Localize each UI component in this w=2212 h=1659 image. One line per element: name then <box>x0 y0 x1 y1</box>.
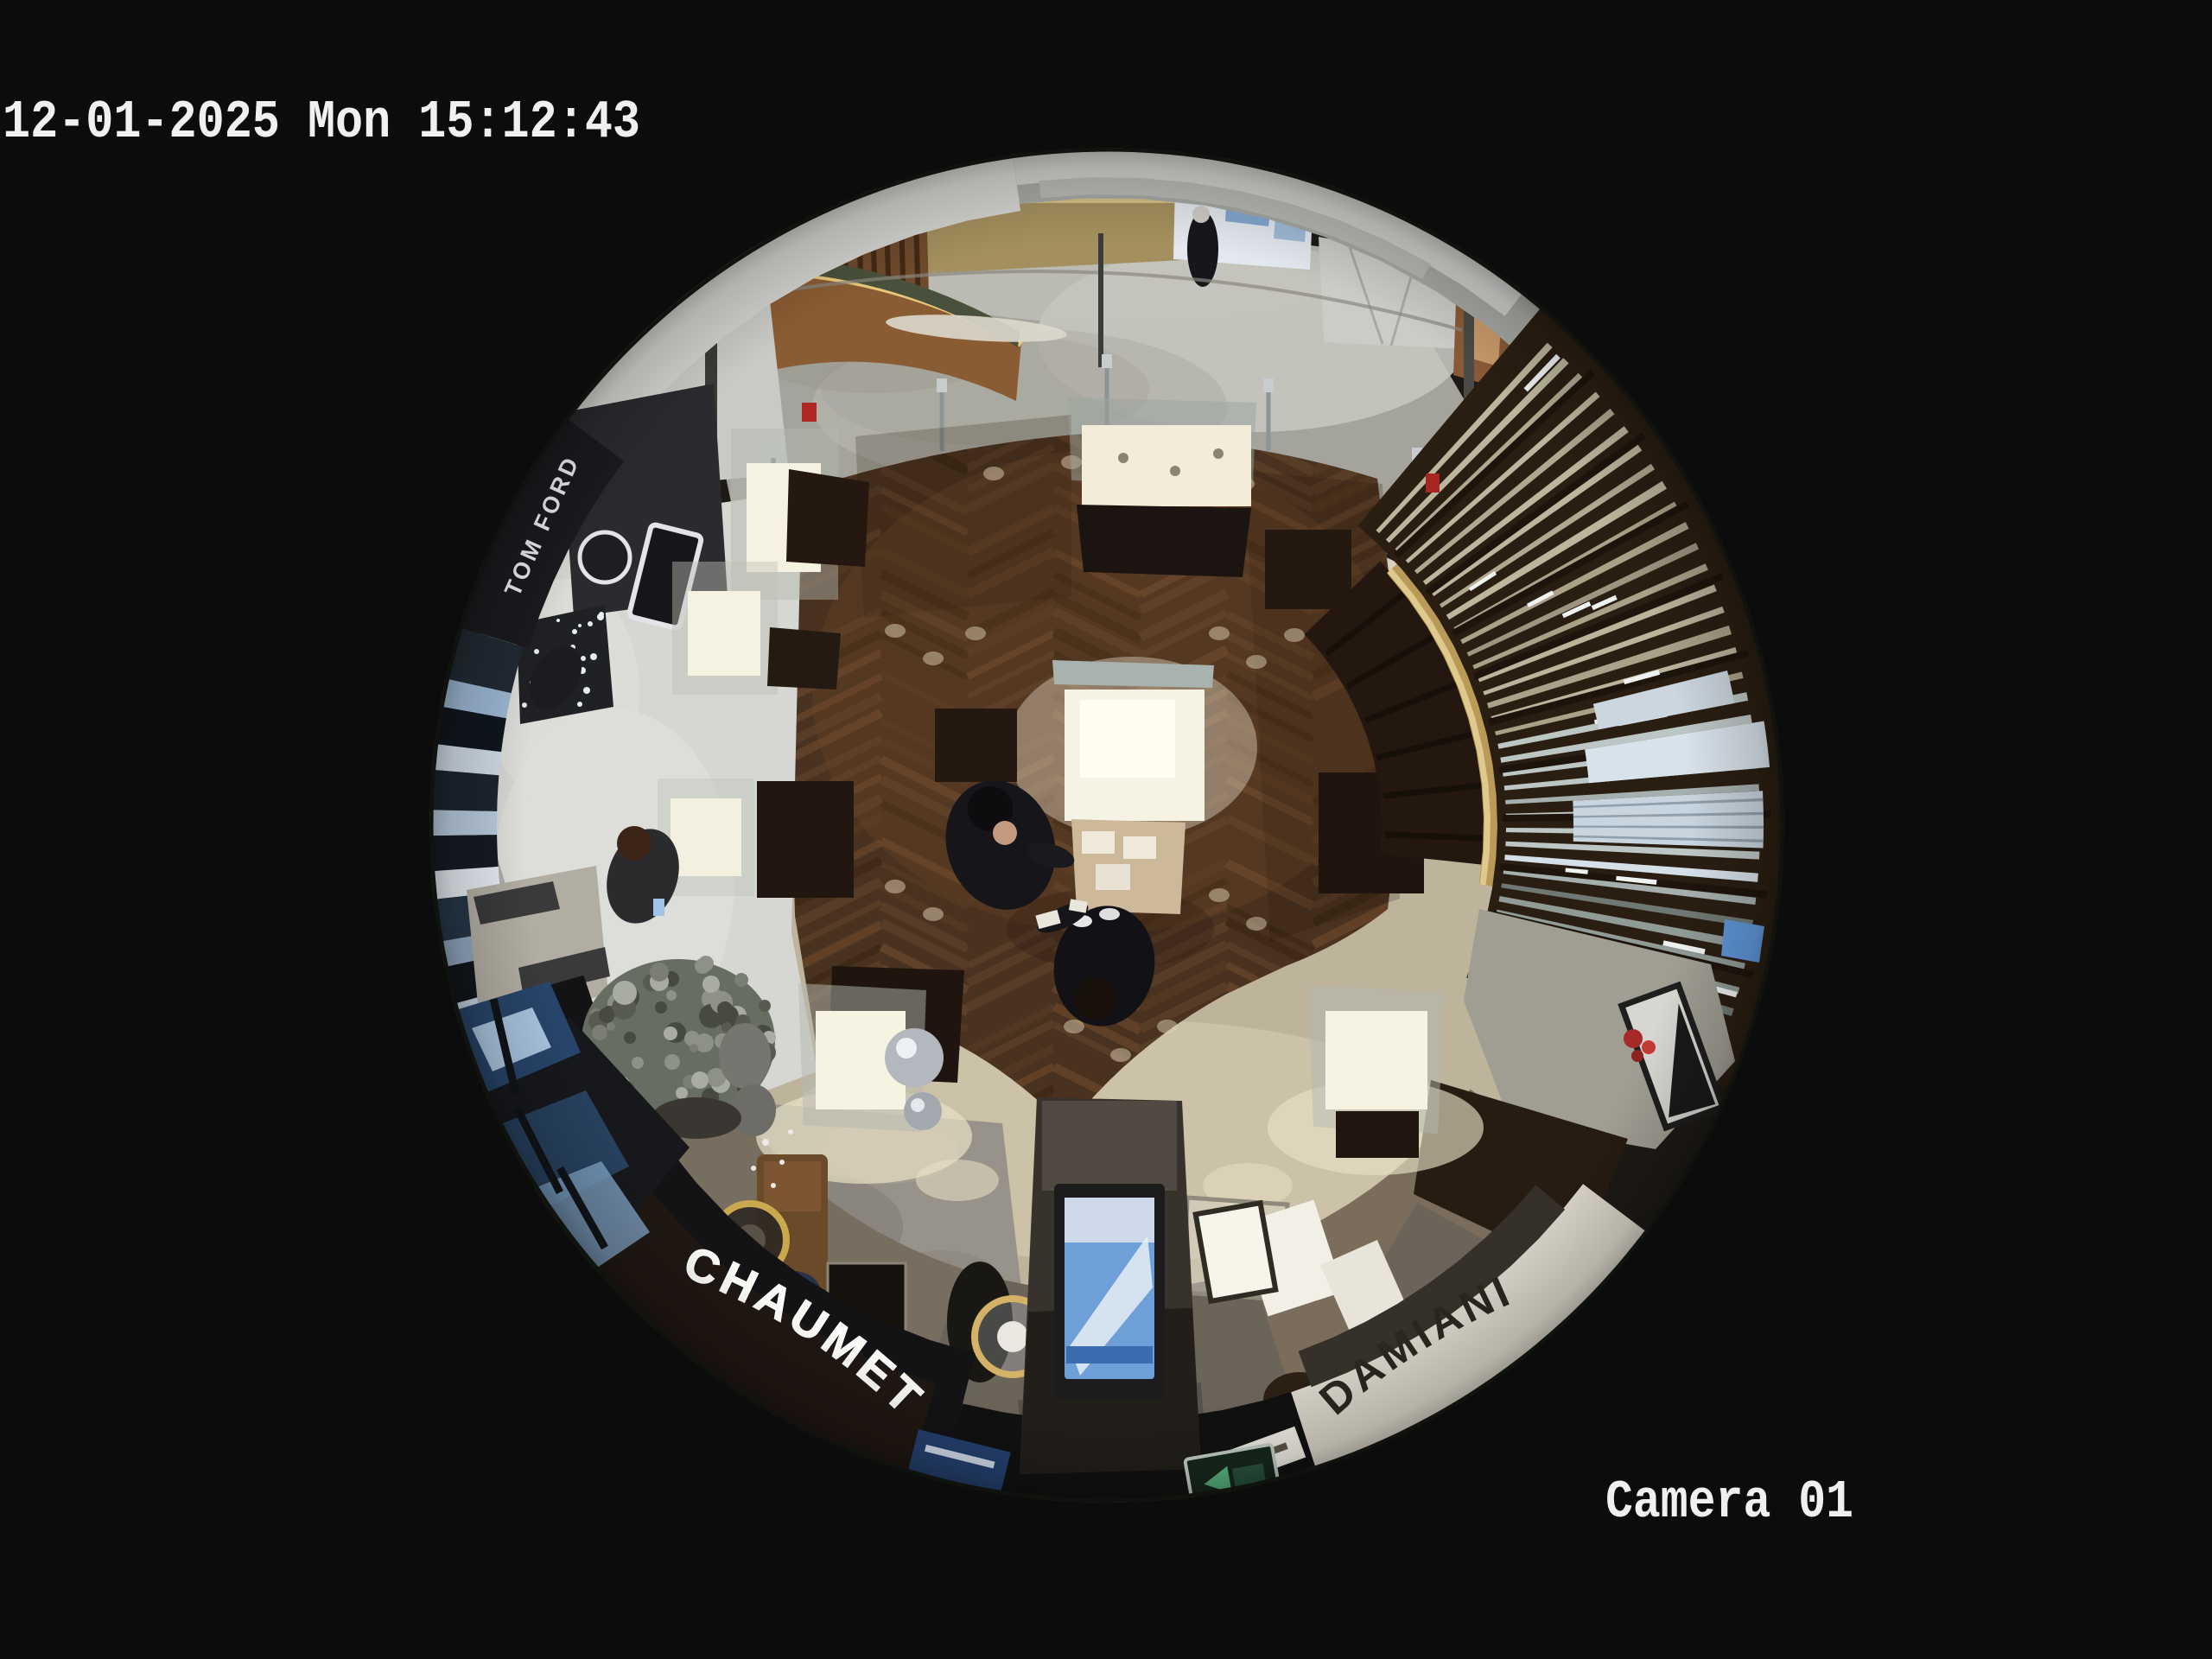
svg-text:12-01-2025 Mon 15:12:43: 12-01-2025 Mon 15:12:43 <box>3 92 640 153</box>
svg-text:Camera 01: Camera 01 <box>1605 1471 1853 1533</box>
